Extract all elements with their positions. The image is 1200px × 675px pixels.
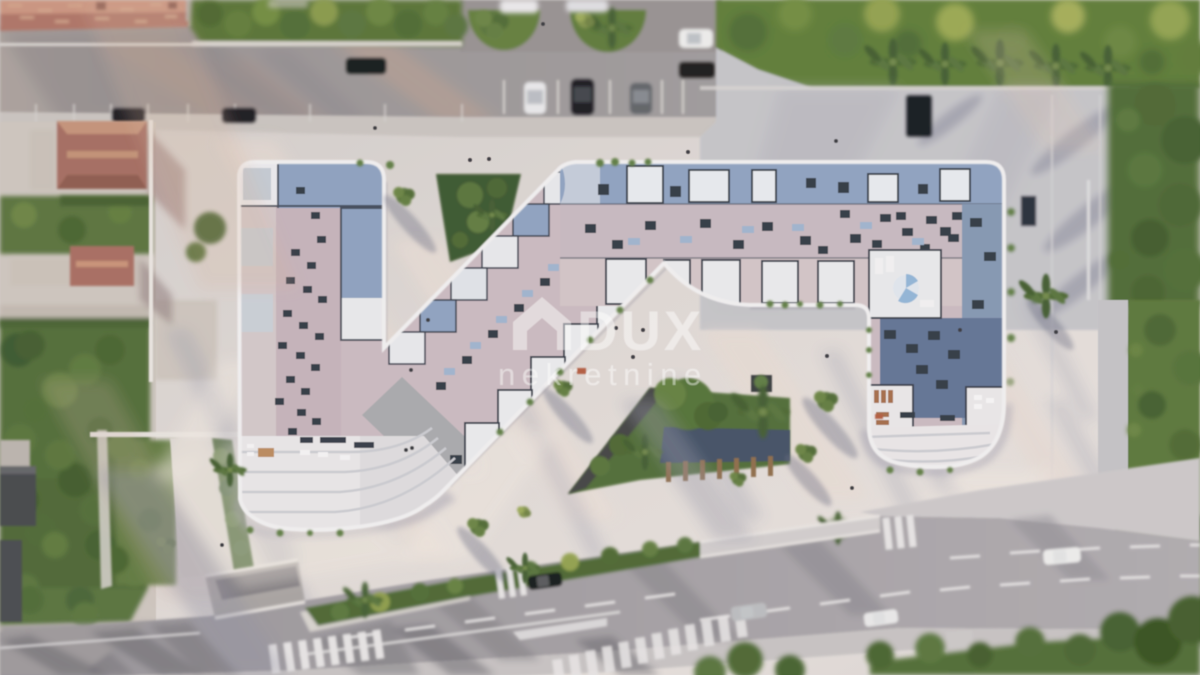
svg-text:nekretnine: nekretnine	[498, 357, 708, 392]
svg-text:DUX: DUX	[577, 299, 704, 362]
